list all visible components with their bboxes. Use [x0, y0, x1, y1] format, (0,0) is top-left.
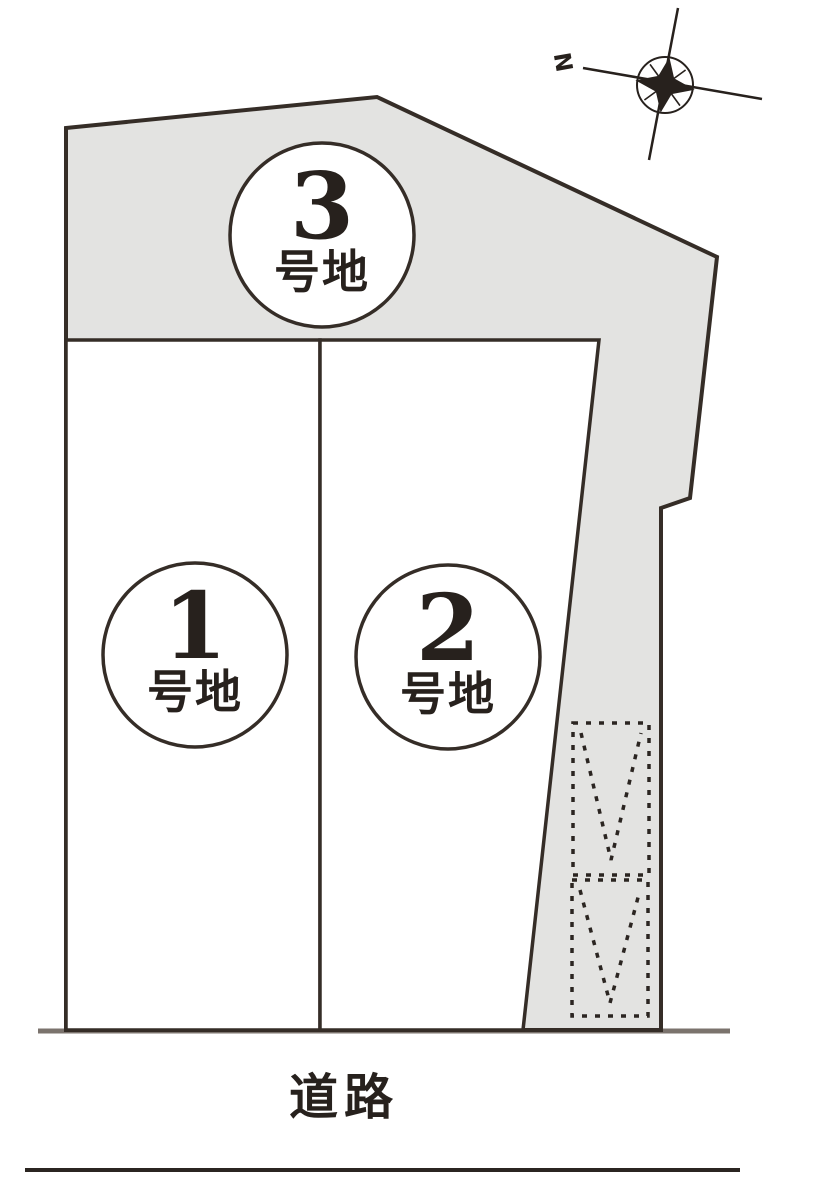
lot2-number: 2 [416, 574, 480, 682]
lot1-badge: 1 号地 [103, 563, 287, 747]
lot3-badge: 3 号地 [230, 143, 414, 327]
lot1-number: 1 [163, 572, 227, 680]
compass-north-label: N [551, 50, 580, 73]
lot3-number: 3 [290, 152, 354, 260]
lot2-suffix: 号地 [400, 667, 496, 721]
compass-star [631, 53, 699, 118]
lot3-suffix: 号地 [274, 245, 370, 299]
lot1-suffix: 号地 [147, 665, 243, 719]
lot2-badge: 2 号地 [356, 565, 540, 749]
compass [583, 8, 762, 160]
lot-division-diagram: 3 号地 1 号地 2 号地 N [0, 0, 823, 1200]
road-label: 道路 [289, 1069, 399, 1126]
